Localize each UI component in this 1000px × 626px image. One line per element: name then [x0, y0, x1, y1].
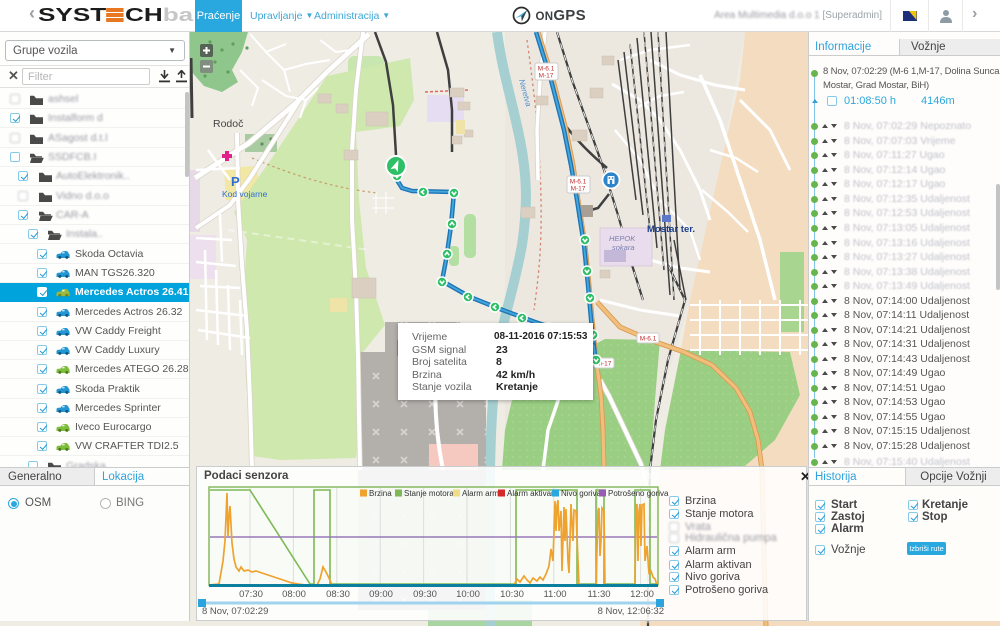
svg-text:11:00: 11:00 — [543, 589, 566, 600]
svg-text:M-17: M-17 — [571, 186, 586, 193]
svg-text:M-6.1: M-6.1 — [640, 336, 657, 343]
svg-text:10:30: 10:30 — [500, 589, 524, 600]
svg-text:08:30: 08:30 — [326, 589, 350, 600]
svg-text:HEPOK: HEPOK — [609, 234, 636, 243]
svg-text:8 Nov, 12:06:32: 8 Nov, 12:06:32 — [598, 606, 664, 617]
svg-text:Potrošeno goriva: Potrošeno goriva — [608, 489, 669, 498]
svg-text:Alarm arm: Alarm arm — [462, 489, 499, 498]
svg-text:11:30: 11:30 — [587, 589, 610, 600]
svg-text:09:30: 09:30 — [413, 589, 437, 600]
svg-text:Rodoč: Rodoč — [213, 118, 243, 130]
svg-text:sokara: sokara — [612, 243, 635, 252]
svg-text:Mostar ter.: Mostar ter. — [647, 224, 695, 235]
svg-text:Alarm aktivan: Alarm aktivan — [507, 489, 555, 498]
svg-text:12:00: 12:00 — [630, 589, 654, 600]
svg-text:Stanje motora: Stanje motora — [404, 489, 454, 498]
svg-text:09:00: 09:00 — [369, 589, 393, 600]
svg-text:Nivo goriva: Nivo goriva — [561, 489, 602, 498]
svg-text:M-6.1: M-6.1 — [538, 66, 555, 73]
svg-text:M-17: M-17 — [539, 73, 554, 80]
svg-text:Brzina: Brzina — [369, 489, 392, 498]
svg-text:8 Nov, 07:02:29: 8 Nov, 07:02:29 — [202, 606, 268, 617]
svg-text:M-6.1: M-6.1 — [570, 179, 587, 186]
svg-text:08:00: 08:00 — [282, 589, 306, 600]
svg-text:P: P — [231, 174, 240, 189]
svg-text:07:30: 07:30 — [239, 589, 263, 600]
svg-text:10:00: 10:00 — [456, 589, 480, 600]
svg-text:Kod vojarne: Kod vojarne — [222, 189, 268, 199]
